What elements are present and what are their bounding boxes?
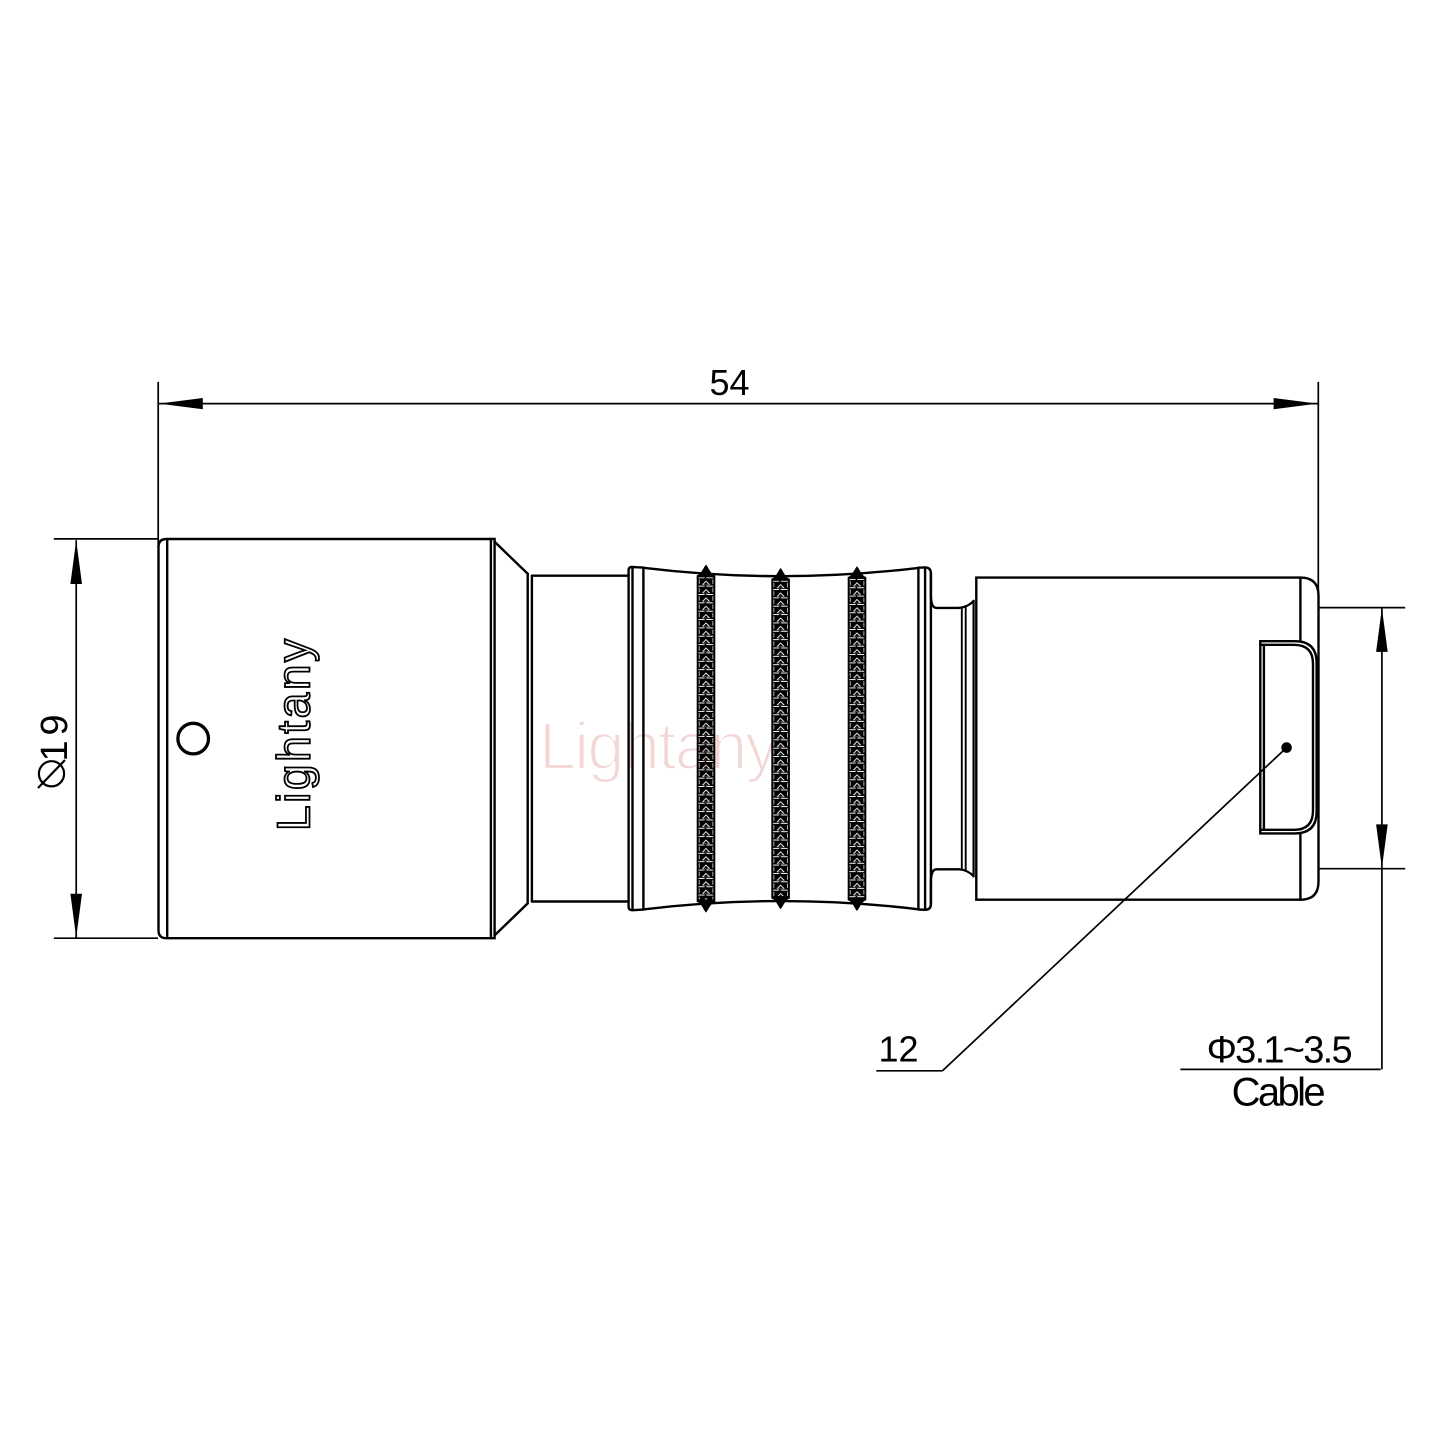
- svg-text:Lightany: Lightany: [539, 709, 780, 784]
- svg-text:Φ3.1~3.5: Φ3.1~3.5: [1207, 1030, 1353, 1072]
- svg-text:Cable: Cable: [1232, 1070, 1326, 1114]
- svg-text:12: 12: [878, 1029, 918, 1070]
- svg-text:54: 54: [709, 362, 749, 403]
